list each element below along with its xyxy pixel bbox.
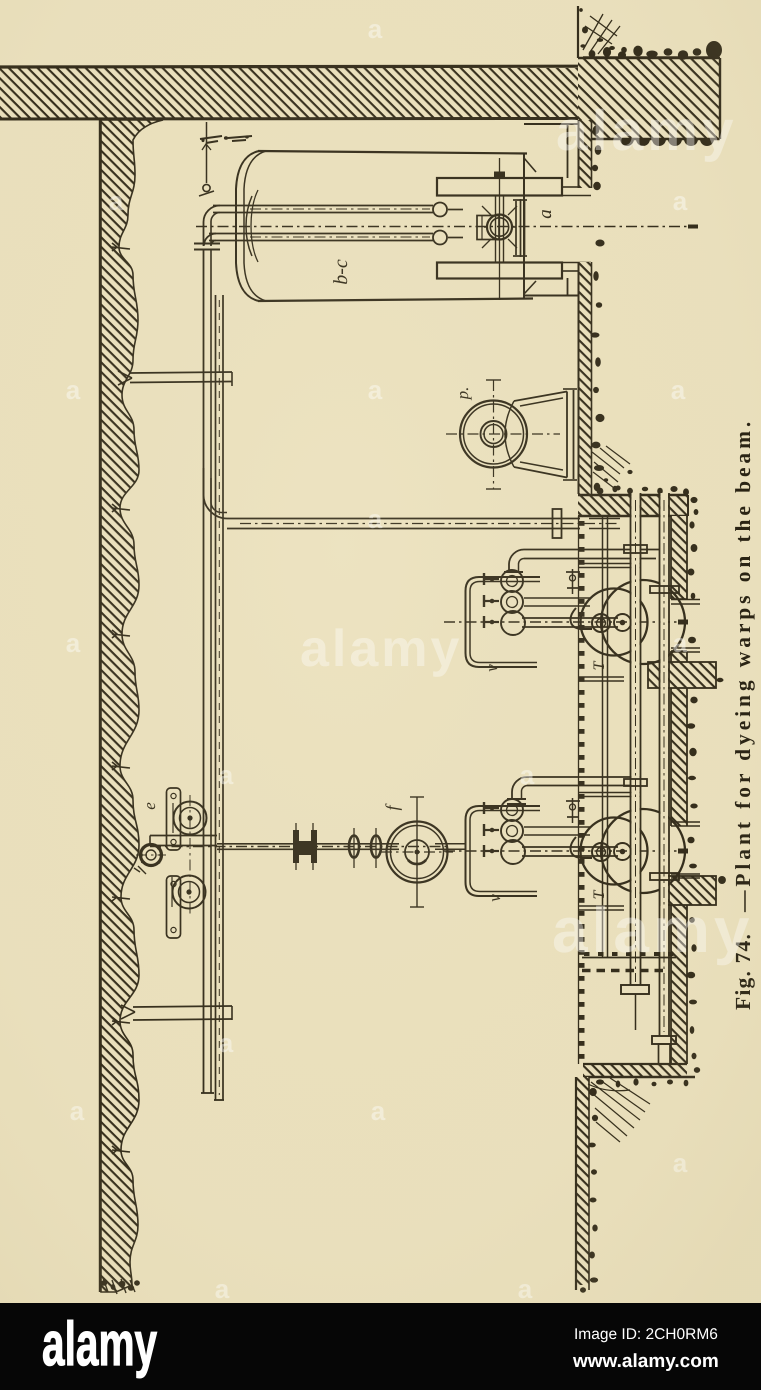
svg-text:alamy: alamy — [42, 1310, 157, 1379]
svg-text:Image ID: 2CH0RM6: Image ID: 2CH0RM6 — [574, 1326, 718, 1343]
svg-text:www.alamy.com: www.alamy.com — [572, 1351, 719, 1372]
